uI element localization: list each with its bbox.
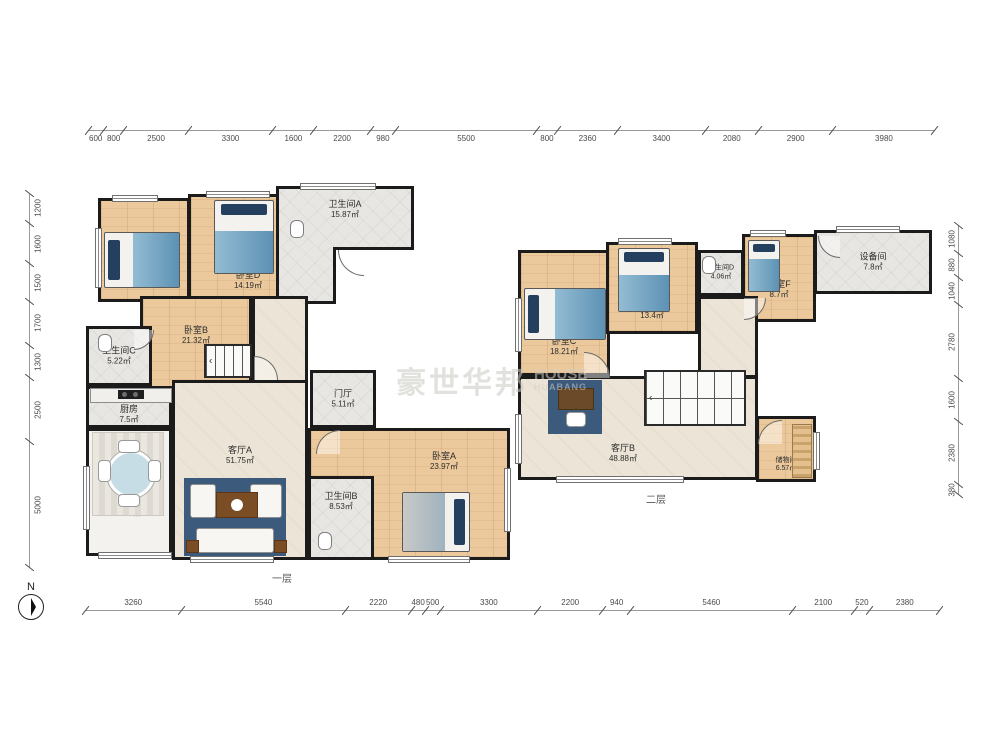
dim-value: 2200 — [538, 596, 603, 607]
room-entry-hall: 门厅 5.11㎡ — [310, 370, 376, 428]
dim-value: 1600 — [273, 122, 314, 143]
window — [112, 195, 158, 202]
door-arc — [338, 250, 364, 276]
dim-value: 2780 — [948, 333, 957, 351]
room-label: 卧室A 23.97㎡ — [381, 451, 507, 472]
room-label: 厨房 7.5㎡ — [89, 404, 169, 425]
room-area: 5.22㎡ — [89, 357, 149, 367]
side-table — [186, 540, 199, 553]
window — [836, 226, 900, 233]
dim-value: 3300 — [440, 596, 538, 607]
dim-value: 2080 — [705, 122, 758, 143]
dim-segment: 3300 — [188, 122, 273, 146]
dim-segment: 1500 — [22, 264, 46, 302]
bed-pillow — [753, 244, 775, 252]
dim-value: 380 — [948, 483, 957, 496]
dim-value: 1500 — [34, 274, 43, 292]
bed-blanket — [749, 259, 779, 291]
room-area: 4.06㎡ — [701, 273, 741, 282]
window — [813, 432, 820, 470]
dim-segment: 500 — [425, 596, 440, 620]
desk-chair — [566, 412, 586, 427]
side-table — [274, 540, 287, 553]
bed — [748, 240, 780, 292]
bed-blanket — [133, 233, 179, 287]
room-area: 8.53㎡ — [311, 502, 371, 512]
bed-pillow — [528, 295, 539, 333]
window — [556, 476, 684, 483]
room-label: 门厅 5.11㎡ — [313, 388, 373, 409]
dim-segment: 2780 — [944, 305, 968, 379]
room-label: 客厅A 51.75㎡ — [175, 445, 305, 466]
dim-value: 2220 — [345, 596, 411, 607]
dim-value: 520 — [854, 596, 869, 607]
window — [83, 466, 90, 530]
bed — [104, 232, 180, 288]
room-bathroom-A: 卫生间A 15.87㎡ — [276, 186, 414, 250]
room-name: 厨房 — [89, 404, 169, 415]
bed-pillow — [108, 240, 120, 280]
dim-value: 1200 — [34, 199, 43, 217]
stair-arrow-icon: ‹ — [649, 393, 652, 404]
dining-chair — [118, 440, 140, 453]
dim-value: 3300 — [188, 122, 273, 143]
dim-segment: 1600 — [22, 223, 46, 264]
dim-value: 5500 — [396, 122, 537, 143]
dim-segment: 520 — [854, 596, 869, 620]
dimension-row-bottom: 3260 5540 2220 480 500 3300 2200 940 546… — [85, 596, 940, 620]
room-name: 卧室B — [143, 325, 249, 336]
room-area: 23.97㎡ — [381, 462, 507, 472]
compass-needle-icon — [26, 598, 36, 616]
dim-segment: 940 — [603, 596, 631, 620]
dim-segment: 1700 — [22, 302, 46, 345]
dim-value: 3400 — [618, 122, 705, 143]
dim-segment: 2080 — [705, 122, 758, 146]
dim-value: 5460 — [631, 596, 793, 607]
dim-segment: 2200 — [314, 122, 370, 146]
stove-icon — [118, 390, 144, 399]
staircase: ‹ — [644, 370, 746, 426]
bed-blanket — [215, 231, 273, 273]
dim-segment: 2100 — [792, 596, 854, 620]
room-label: 卫生间B 8.53㎡ — [311, 491, 371, 512]
compass-icon — [18, 594, 44, 620]
compass-north-label: N — [16, 581, 46, 593]
window — [515, 298, 522, 352]
window — [618, 238, 672, 245]
dim-segment: 2380 — [870, 596, 940, 620]
bed — [524, 288, 606, 340]
dim-value: 1700 — [34, 315, 43, 333]
dim-value: 940 — [603, 596, 631, 607]
window — [190, 556, 274, 563]
toilet-icon — [702, 256, 716, 274]
floor1-label: 一层 — [272, 570, 292, 585]
table-decor — [231, 499, 243, 511]
dim-segment: 3980 — [833, 122, 935, 146]
burner — [133, 392, 138, 397]
dim-segment: 1600 — [273, 122, 314, 146]
dim-value: 880 — [948, 259, 957, 272]
dim-value: 500 — [425, 596, 440, 607]
dim-value: 2380 — [870, 596, 940, 607]
dim-segment: 2380 — [944, 422, 968, 485]
dim-value: 1600 — [948, 391, 957, 409]
room-name: 客厅A — [175, 445, 305, 456]
room-label: 客厅B 48.88㎡ — [491, 443, 755, 464]
toilet-icon — [98, 334, 112, 352]
dimension-row-top: 600 800 2500 3300 1600 2200 980 5500 800… — [88, 122, 935, 146]
room-area: 51.75㎡ — [175, 456, 305, 466]
dim-segment: 5500 — [396, 122, 537, 146]
dim-value: 3260 — [85, 596, 181, 607]
toilet-icon — [290, 220, 304, 238]
dim-value: 2200 — [314, 122, 370, 143]
dim-value: 2500 — [34, 401, 43, 419]
bed-blanket — [555, 289, 605, 339]
staircase: ‹ — [204, 344, 252, 378]
dim-value: 2380 — [948, 444, 957, 462]
dim-value: 2900 — [758, 122, 832, 143]
dim-segment: 2500 — [22, 378, 46, 441]
dim-value: 3980 — [833, 122, 935, 143]
dim-value: 1600 — [34, 235, 43, 253]
dim-segment: 3300 — [440, 596, 538, 620]
desk — [558, 388, 594, 410]
dim-segment: 5540 — [181, 596, 345, 620]
dim-value: 1080 — [948, 230, 957, 248]
watermark-cn-text: 豪世华邦 — [396, 358, 528, 402]
armchair — [190, 484, 216, 518]
dim-value: 2100 — [792, 596, 854, 607]
floorplan-canvas: 600 800 2500 3300 1600 2200 980 5500 800… — [0, 0, 1000, 750]
room-name: 卫生间B — [311, 491, 371, 502]
dim-value: 1040 — [948, 282, 957, 300]
dim-segment: 1600 — [944, 379, 968, 422]
dim-segment: 880 — [944, 254, 968, 277]
bed-pillow — [454, 499, 465, 545]
dimension-col-left: 1200 1600 1500 1700 1300 2500 5000 — [22, 193, 46, 568]
dim-segment: 2360 — [557, 122, 618, 146]
dimension-col-right: 1080 880 1040 2780 1600 2380 380 — [944, 225, 968, 495]
room-area: 5.11㎡ — [313, 400, 373, 410]
sofa — [196, 528, 274, 553]
bed — [402, 492, 470, 552]
dim-segment: 5000 — [22, 441, 46, 568]
dim-segment: 5460 — [631, 596, 793, 620]
compass: N — [16, 581, 46, 620]
dining-chair — [148, 460, 161, 482]
room-area: 7.5㎡ — [89, 415, 169, 425]
window — [300, 183, 376, 190]
dim-value: 480 — [411, 596, 425, 607]
bed — [214, 200, 274, 274]
dim-segment: 2200 — [538, 596, 603, 620]
bed-pillow — [624, 252, 664, 262]
room-name: 卧室A — [381, 451, 507, 462]
dim-segment: 3400 — [618, 122, 705, 146]
room-label: 卫生间A 15.87㎡ — [279, 199, 411, 220]
dining-chair — [118, 494, 140, 507]
burner — [122, 392, 127, 397]
dim-value: 2360 — [557, 122, 618, 143]
room-name: 卫生间A — [279, 199, 411, 210]
coffee-table — [216, 492, 258, 518]
dim-segment: 480 — [411, 596, 425, 620]
dim-segment: 3260 — [85, 596, 181, 620]
dim-segment: 380 — [944, 485, 968, 495]
stair-arrow-icon: ‹ — [209, 356, 212, 367]
room-area: 15.87㎡ — [279, 210, 411, 220]
window — [515, 414, 522, 464]
bed-pillow — [221, 204, 267, 215]
dim-value: 5540 — [181, 596, 345, 607]
dim-segment: 1040 — [944, 277, 968, 305]
room-name: 门厅 — [313, 388, 373, 399]
window — [388, 556, 470, 563]
dim-value: 5000 — [34, 496, 43, 514]
floor2-label: 二层 — [646, 491, 666, 506]
bed-blanket — [403, 493, 445, 551]
window — [504, 468, 511, 532]
toilet-icon — [318, 532, 332, 550]
window — [95, 228, 102, 288]
dining-chair — [98, 460, 111, 482]
room-name: 客厅B — [491, 443, 755, 454]
dim-segment: 2220 — [345, 596, 411, 620]
dim-segment: 2900 — [758, 122, 832, 146]
storage-shelf — [792, 424, 812, 478]
room-area: 48.88㎡ — [491, 454, 755, 464]
window — [750, 230, 786, 237]
bed — [618, 248, 670, 312]
window — [206, 191, 270, 198]
window — [98, 552, 172, 559]
dim-segment: 1080 — [944, 225, 968, 254]
dim-value: 1300 — [34, 353, 43, 371]
room-area: 13.4㎡ — [609, 311, 695, 321]
dim-value: 2500 — [124, 122, 188, 143]
room-area: 7.8㎡ — [817, 263, 929, 273]
dim-segment: 2500 — [124, 122, 188, 146]
bed-blanket — [619, 275, 669, 311]
